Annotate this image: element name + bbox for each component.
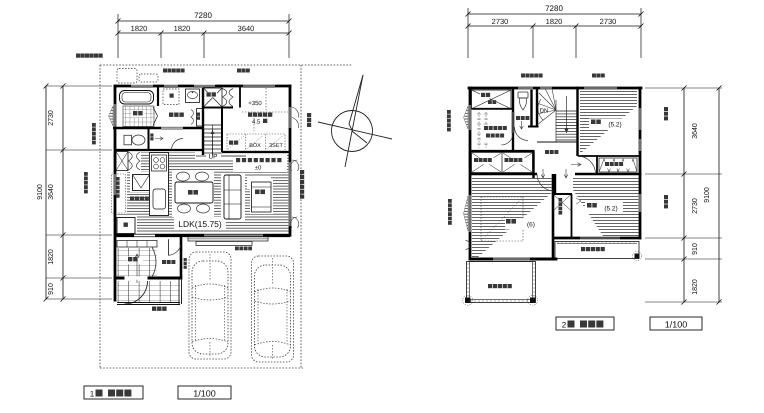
svg-text:UP: UP (208, 153, 217, 160)
svg-text:9100: 9100 (704, 187, 711, 203)
svg-text:3640: 3640 (238, 24, 255, 33)
svg-text:1: 1 (90, 389, 95, 398)
svg-text:2: 2 (562, 320, 567, 329)
svg-text:910: 910 (692, 243, 699, 255)
svg-text:1820: 1820 (131, 24, 148, 33)
svg-text:(5.2): (5.2) (604, 205, 617, 212)
svg-text:LDK(15.75): LDK(15.75) (178, 219, 222, 229)
svg-text:±0: ±0 (255, 165, 262, 171)
svg-text:2730: 2730 (692, 198, 699, 214)
svg-text:9100: 9100 (37, 184, 44, 200)
svg-text:3640: 3640 (692, 123, 699, 139)
svg-text:(5.2): (5.2) (608, 121, 621, 128)
svg-text:1820: 1820 (546, 17, 563, 26)
svg-text:4.5: 4.5 (252, 120, 261, 126)
svg-text:1820: 1820 (174, 24, 191, 33)
svg-text:1/100: 1/100 (193, 388, 216, 398)
svg-text:+350: +350 (248, 101, 262, 107)
svg-text:BOX: BOX (249, 143, 261, 149)
svg-text:(6): (6) (527, 221, 535, 228)
svg-text:1/100: 1/100 (665, 319, 688, 329)
svg-text:1820: 1820 (692, 279, 699, 295)
svg-text:2730: 2730 (492, 17, 509, 26)
svg-text:2730: 2730 (48, 110, 55, 126)
svg-text:2730: 2730 (600, 17, 617, 26)
svg-text:1820: 1820 (48, 249, 55, 265)
svg-text:3SET: 3SET (269, 143, 283, 149)
svg-text:7280: 7280 (545, 4, 563, 13)
svg-text:7280: 7280 (194, 11, 212, 20)
svg-text:910: 910 (48, 283, 55, 295)
svg-text:DN: DN (540, 108, 549, 114)
svg-text:3640: 3640 (48, 184, 55, 200)
